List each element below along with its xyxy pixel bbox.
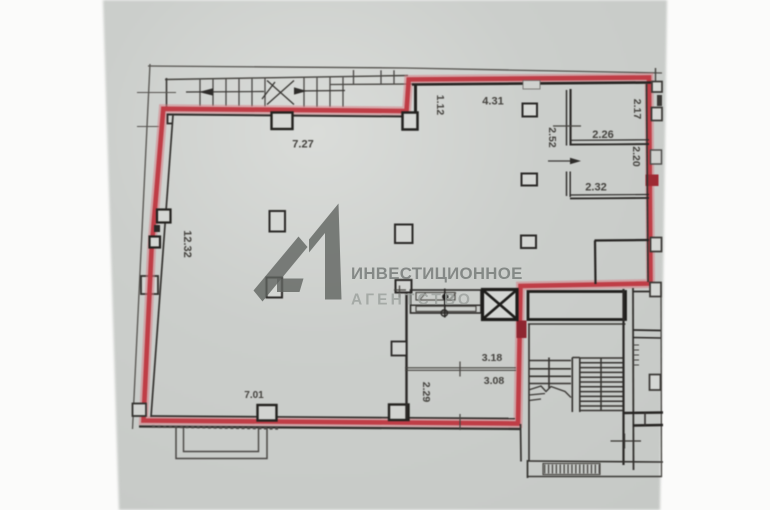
svg-text:1.12: 1.12 xyxy=(434,95,446,116)
svg-text:2.20: 2.20 xyxy=(630,146,642,167)
svg-text:АГЕНТСТВО: АГЕНТСТВО xyxy=(351,292,473,309)
svg-text:2.32: 2.32 xyxy=(585,182,606,194)
svg-text:2.29: 2.29 xyxy=(420,382,432,403)
svg-text:3.08: 3.08 xyxy=(484,375,505,387)
svg-text:2.17: 2.17 xyxy=(631,99,643,120)
svg-text:7.01: 7.01 xyxy=(244,390,264,401)
svg-text:12.32: 12.32 xyxy=(181,230,193,258)
svg-text:3.18: 3.18 xyxy=(482,352,503,364)
svg-text:ИНВЕСТИЦИОННОЕ: ИНВЕСТИЦИОННОЕ xyxy=(351,264,523,283)
svg-text:2.52: 2.52 xyxy=(546,127,558,148)
svg-text:2.26: 2.26 xyxy=(592,129,613,141)
svg-text:7.27: 7.27 xyxy=(292,139,313,151)
svg-text:4.31: 4.31 xyxy=(482,96,503,108)
